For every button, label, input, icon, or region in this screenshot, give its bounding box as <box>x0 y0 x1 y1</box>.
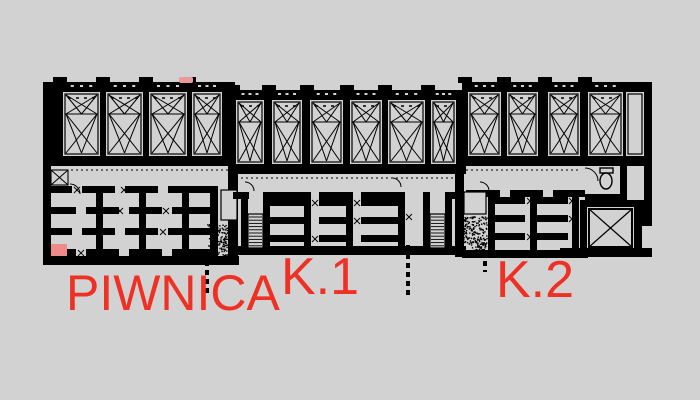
vent-dash <box>442 93 445 95</box>
stipple-dot <box>470 240 471 241</box>
floor-plan-drawing: PIWNICA K.1 K.2 <box>0 0 700 400</box>
stipple-dot <box>485 218 486 219</box>
stipple-dot <box>211 231 212 232</box>
stipple-dot <box>479 227 480 228</box>
stipple-dot <box>226 254 227 255</box>
stipple-dot <box>470 228 471 229</box>
stipple-dot <box>480 250 481 251</box>
stipple-dot <box>229 255 230 256</box>
stipple-dot <box>473 227 474 228</box>
stipple-dot <box>221 241 222 242</box>
stipple-dot <box>474 237 475 238</box>
stipple-dot <box>467 255 468 256</box>
stipple-dot <box>485 246 486 247</box>
stipple-dot <box>227 230 228 231</box>
stipple-dot <box>224 226 225 227</box>
stipple-dot <box>473 256 474 257</box>
stipple-dot <box>224 251 225 252</box>
stipple-dot <box>229 232 230 233</box>
vent-dash <box>167 85 170 87</box>
wall-pier <box>497 77 511 83</box>
stipple-dot <box>230 258 231 259</box>
stipple-dot <box>217 227 218 228</box>
stipple-dot <box>482 249 483 250</box>
stipple-dot <box>462 225 463 226</box>
outer-wall-left <box>43 82 51 265</box>
stipple-dot <box>229 240 230 241</box>
vent-dash <box>198 85 201 87</box>
stipple-dot <box>210 252 211 253</box>
stipple-dot <box>209 228 210 229</box>
stipple-dot <box>484 249 485 250</box>
stipple-dot <box>208 226 209 227</box>
stipple-dot <box>218 253 219 254</box>
stipple-dot <box>478 220 479 221</box>
stair-wall <box>423 192 430 254</box>
stipple-dot <box>213 244 214 245</box>
cell-wall <box>172 207 213 214</box>
stipple-dot <box>225 242 226 243</box>
stipple-dot <box>464 217 465 218</box>
cell-stub <box>488 190 495 257</box>
vent-dash <box>293 93 296 95</box>
stipple-dot <box>212 247 213 248</box>
stipple-dot <box>212 235 213 236</box>
stipple-dot <box>475 240 476 241</box>
stipple-dot <box>230 234 231 235</box>
stipple-dot <box>477 251 478 252</box>
stipple-dot <box>219 241 220 242</box>
wall-pier <box>538 77 552 83</box>
stipple-dot <box>228 246 229 247</box>
stipple-dot <box>223 229 224 230</box>
stipple-dot <box>468 226 469 227</box>
stipple-dot <box>474 221 475 222</box>
storage-room <box>63 92 100 156</box>
stipple-dot <box>465 253 466 254</box>
cell-stub <box>96 186 103 256</box>
stipple-dot <box>229 238 230 239</box>
stipple-dot <box>486 228 487 229</box>
stipple-dot <box>213 232 214 233</box>
stipple-dot <box>209 246 210 247</box>
stipple-dot <box>472 247 473 248</box>
vent-dash <box>604 85 607 87</box>
stipple-dot <box>216 227 217 228</box>
stipple-dot <box>226 245 227 246</box>
stipple-dot <box>467 221 468 222</box>
cell-wall <box>494 233 525 240</box>
stipple-dot <box>486 238 487 239</box>
door-arc <box>585 168 598 181</box>
vent-dash <box>571 85 574 87</box>
stipple-dot <box>476 255 477 256</box>
stair-wall <box>445 192 452 254</box>
cell-stub <box>182 186 189 256</box>
storage-room <box>236 100 264 164</box>
vent-dash <box>365 93 368 95</box>
stipple-dot <box>228 228 229 229</box>
stipple-dot <box>466 236 467 237</box>
stipple-dot <box>484 223 485 224</box>
stipple-dot <box>220 237 221 238</box>
stipple-dot <box>215 249 216 250</box>
stipple-dot <box>224 237 225 238</box>
storage-room <box>272 100 302 164</box>
stipple-dot <box>217 230 218 231</box>
stipple-dot <box>464 250 465 251</box>
stipple-dot <box>479 241 480 242</box>
stipple-dot <box>464 242 465 243</box>
storage-room <box>388 100 425 164</box>
stipple-dot <box>477 244 478 245</box>
stipple-dot <box>473 250 474 251</box>
stipple-dot <box>225 225 226 226</box>
stipple-dot <box>485 216 486 217</box>
stipple-dot <box>481 242 482 243</box>
stipple-dot <box>462 228 463 229</box>
wall-pier <box>578 77 592 83</box>
cell-stub <box>398 192 405 250</box>
stipple-dot <box>473 216 474 217</box>
stipple-dot <box>228 231 229 232</box>
stipple-dot <box>483 238 484 239</box>
stipple-dot <box>230 238 231 239</box>
stipple-dot <box>480 248 481 249</box>
stipple-dot <box>209 238 210 239</box>
stipple-dot <box>228 235 229 236</box>
stipple-dot <box>231 239 232 240</box>
stipple-dot <box>463 247 464 248</box>
wc-wall <box>585 194 627 201</box>
vent-dash <box>529 85 532 87</box>
stipple-dot <box>482 251 483 252</box>
stipple-dot <box>475 249 476 250</box>
cell-wall <box>51 207 76 214</box>
storage-room <box>588 92 623 156</box>
stipple-dot <box>221 251 222 252</box>
vent-dash <box>405 93 408 95</box>
label-piwnica: PIWNICA <box>66 265 281 321</box>
stipple-dot <box>477 232 478 233</box>
cell-wall <box>494 197 525 204</box>
stipple-dot <box>479 255 480 256</box>
cell-wall <box>537 215 568 222</box>
stipple-dot <box>222 225 223 226</box>
cell-wall <box>494 215 525 222</box>
toilet-tank <box>600 168 613 173</box>
stipple-dot <box>474 226 475 227</box>
cell-stub <box>139 186 146 256</box>
wall-smudge <box>179 77 193 83</box>
stipple-dot <box>223 242 224 243</box>
stipple-dot <box>469 232 470 233</box>
stipple-dot <box>207 233 208 234</box>
vent-dash <box>555 85 558 87</box>
stipple-dot <box>469 243 470 244</box>
stipple-dot <box>215 250 216 251</box>
stipple-dot <box>473 228 474 229</box>
stipple-dot <box>219 228 220 229</box>
stipple-dot <box>220 239 221 240</box>
stipple-dot <box>464 231 465 232</box>
stipple-dot <box>469 226 470 227</box>
vent-dash <box>157 85 160 87</box>
stipple-dot <box>474 251 475 252</box>
stipple-dot <box>230 254 231 255</box>
stipple-dot <box>473 221 474 222</box>
stipple-dot <box>219 243 220 244</box>
stipple-dot <box>481 228 482 229</box>
stipple-dot <box>480 244 481 245</box>
stipple-dot <box>217 225 218 226</box>
stipple-dot <box>462 249 463 250</box>
door-arc <box>245 182 254 191</box>
vent-dash <box>71 85 74 87</box>
vent-dash <box>448 93 451 95</box>
stipple-dot <box>484 231 485 232</box>
stipple-dot <box>226 234 227 235</box>
stipple-dot <box>486 224 487 225</box>
vent-dash <box>436 93 439 95</box>
wall-pier <box>226 85 240 91</box>
stipple-dot <box>222 227 223 228</box>
stipple-dot <box>230 241 231 242</box>
stipple-dot <box>228 233 229 234</box>
stipple-dot <box>210 241 211 242</box>
stipple-dot <box>478 236 479 237</box>
vent-dash <box>325 93 328 95</box>
stipple-dot <box>484 247 485 248</box>
vent-dash <box>595 85 598 87</box>
vent-dash <box>317 93 320 95</box>
stipple-dot <box>226 247 227 248</box>
stipple-dot <box>481 246 482 247</box>
stair-wall <box>263 192 270 254</box>
stipple-dot <box>463 237 464 238</box>
vent-dash <box>333 93 336 95</box>
stipple-dot <box>476 223 477 224</box>
vent-dash <box>513 85 516 87</box>
stipple-dot <box>478 246 479 247</box>
stipple-dot <box>219 225 220 226</box>
stipple-dot <box>225 229 226 230</box>
stipple-dot <box>470 217 471 218</box>
stipple-dot <box>480 237 481 238</box>
stipple-dot <box>228 243 229 244</box>
stipple-dot <box>479 251 480 252</box>
vent-dash <box>278 93 281 95</box>
vent-dash <box>213 85 216 87</box>
vent-dash <box>373 93 376 95</box>
label-k1: K.1 <box>281 248 359 306</box>
stipple-dot <box>468 255 469 256</box>
stipple-dot <box>467 217 468 218</box>
stipple-dot <box>213 240 214 241</box>
section-wall-2 <box>455 90 464 257</box>
stipple-dot <box>467 242 468 243</box>
stipple-dot <box>221 249 222 250</box>
wall-pier <box>300 85 314 91</box>
stipple-dot <box>226 257 227 258</box>
cell-stub <box>346 192 353 250</box>
stipple-dot <box>210 248 211 249</box>
stair-wall <box>241 192 248 254</box>
stipple-dot <box>482 235 483 236</box>
stipple-dot <box>218 241 219 242</box>
stipple-dot <box>474 234 475 235</box>
xroom-wall <box>580 200 640 207</box>
wall-pier <box>421 85 435 91</box>
stipple-dot <box>214 243 215 244</box>
bottom-wall-left <box>43 256 239 265</box>
stipple-dot <box>481 239 482 240</box>
stipple-dot <box>213 256 214 257</box>
stipple-dot <box>466 227 467 228</box>
stipple-dot <box>466 232 467 233</box>
stipple-dot <box>471 217 472 218</box>
stipple-dot <box>219 248 220 249</box>
wall-pier <box>262 85 276 91</box>
stipple-dot <box>209 249 210 250</box>
stipple-dot <box>462 230 463 231</box>
stipple-dot <box>223 239 224 240</box>
stipple-dot <box>216 245 217 246</box>
cell-wall <box>537 233 568 240</box>
vent-dash <box>521 85 524 87</box>
toilet-bowl <box>600 173 612 189</box>
stipple-dot <box>464 233 465 234</box>
stipple-dot <box>476 225 477 226</box>
stipple-dot <box>216 238 217 239</box>
storage-room <box>350 100 382 164</box>
stipple-dot <box>227 232 228 233</box>
stipple-dot <box>229 254 230 255</box>
xroom-wall <box>634 200 642 250</box>
stipple-dot <box>465 225 466 226</box>
vent-dash <box>249 93 252 95</box>
stipple-dot <box>465 221 466 222</box>
stipple-dot <box>474 232 475 233</box>
stipple-dot <box>222 257 223 258</box>
stipple-dot <box>472 233 473 234</box>
stipple-dot <box>211 227 212 228</box>
stipple-dot <box>471 244 472 245</box>
stipple-dot <box>215 256 216 257</box>
stipple-dot <box>463 239 464 240</box>
vent-dash <box>286 93 289 95</box>
xroom-wall <box>580 200 587 250</box>
stipple-dot <box>214 246 215 247</box>
stipple-dot <box>222 254 223 255</box>
stipple-dot <box>464 220 465 221</box>
vent-dash <box>114 85 117 87</box>
stipple-dot <box>471 238 472 239</box>
stipple-dot <box>471 229 472 230</box>
wall-pier <box>139 77 153 83</box>
wall-pier <box>340 85 354 91</box>
stipple-dot <box>462 237 463 238</box>
storage-room <box>106 92 143 156</box>
stipple-dot <box>231 232 232 233</box>
stipple-dot <box>226 237 227 238</box>
vent-dash <box>89 85 92 87</box>
stipple-dot <box>486 243 487 244</box>
stipple-dot <box>213 238 214 239</box>
stipple-dot <box>219 232 220 233</box>
vent-dash <box>613 85 616 87</box>
stipple-dot <box>480 254 481 255</box>
storage-room <box>192 92 222 156</box>
stipple-dot <box>228 251 229 252</box>
wall-pier <box>96 77 110 83</box>
stipple-dot <box>462 218 463 219</box>
stipple-dot <box>217 235 218 236</box>
stipple-dot <box>472 253 473 254</box>
storage-room <box>310 100 343 164</box>
stipple-dot <box>209 224 210 225</box>
wall-pier <box>458 77 472 83</box>
vent-dash <box>414 93 417 95</box>
cell-wall <box>51 186 72 193</box>
highlighted-cell <box>51 244 67 256</box>
stipple-dot <box>482 217 483 218</box>
vent-dash <box>242 93 245 95</box>
stipple-dot <box>226 250 227 251</box>
stipple-dot <box>482 232 483 233</box>
small-room <box>464 192 486 214</box>
stipple-dot <box>215 254 216 255</box>
vent-dash <box>357 93 360 95</box>
stipple-dot <box>482 245 483 246</box>
stipple-dot <box>218 230 219 231</box>
stipple-dot <box>210 257 211 258</box>
vent-dash <box>256 93 259 95</box>
stipple-dot <box>463 223 464 224</box>
vent-dash <box>132 85 135 87</box>
wc-wall <box>620 166 627 198</box>
stipple-dot <box>223 249 224 250</box>
stipple-dot <box>224 245 225 246</box>
cell-wall <box>510 190 543 197</box>
vent-dash <box>123 85 126 87</box>
vent-dash <box>483 85 486 87</box>
wall-pier <box>378 85 392 91</box>
stipple-dot <box>464 228 465 229</box>
stipple-dot <box>477 243 478 244</box>
stipple-dot <box>481 224 482 225</box>
storage-room <box>431 100 456 164</box>
stipple-dot <box>467 237 468 238</box>
stipple-dot <box>463 234 464 235</box>
storage-room <box>548 92 580 156</box>
wall-pier <box>53 77 67 83</box>
vent-dash <box>176 85 179 87</box>
stipple-dot <box>463 254 464 255</box>
stipple-dot <box>475 246 476 247</box>
stipple-dot <box>209 233 210 234</box>
door-arc <box>392 178 401 187</box>
stipple-dot <box>227 239 228 240</box>
stipple-dot <box>221 247 222 248</box>
stipple-dot <box>212 249 213 250</box>
stipple-dot <box>477 222 478 223</box>
vent-dash <box>80 85 83 87</box>
stipple-dot <box>207 224 208 225</box>
stipple-dot <box>212 225 213 226</box>
cell-wall <box>537 197 568 204</box>
stipple-dot <box>207 229 208 230</box>
